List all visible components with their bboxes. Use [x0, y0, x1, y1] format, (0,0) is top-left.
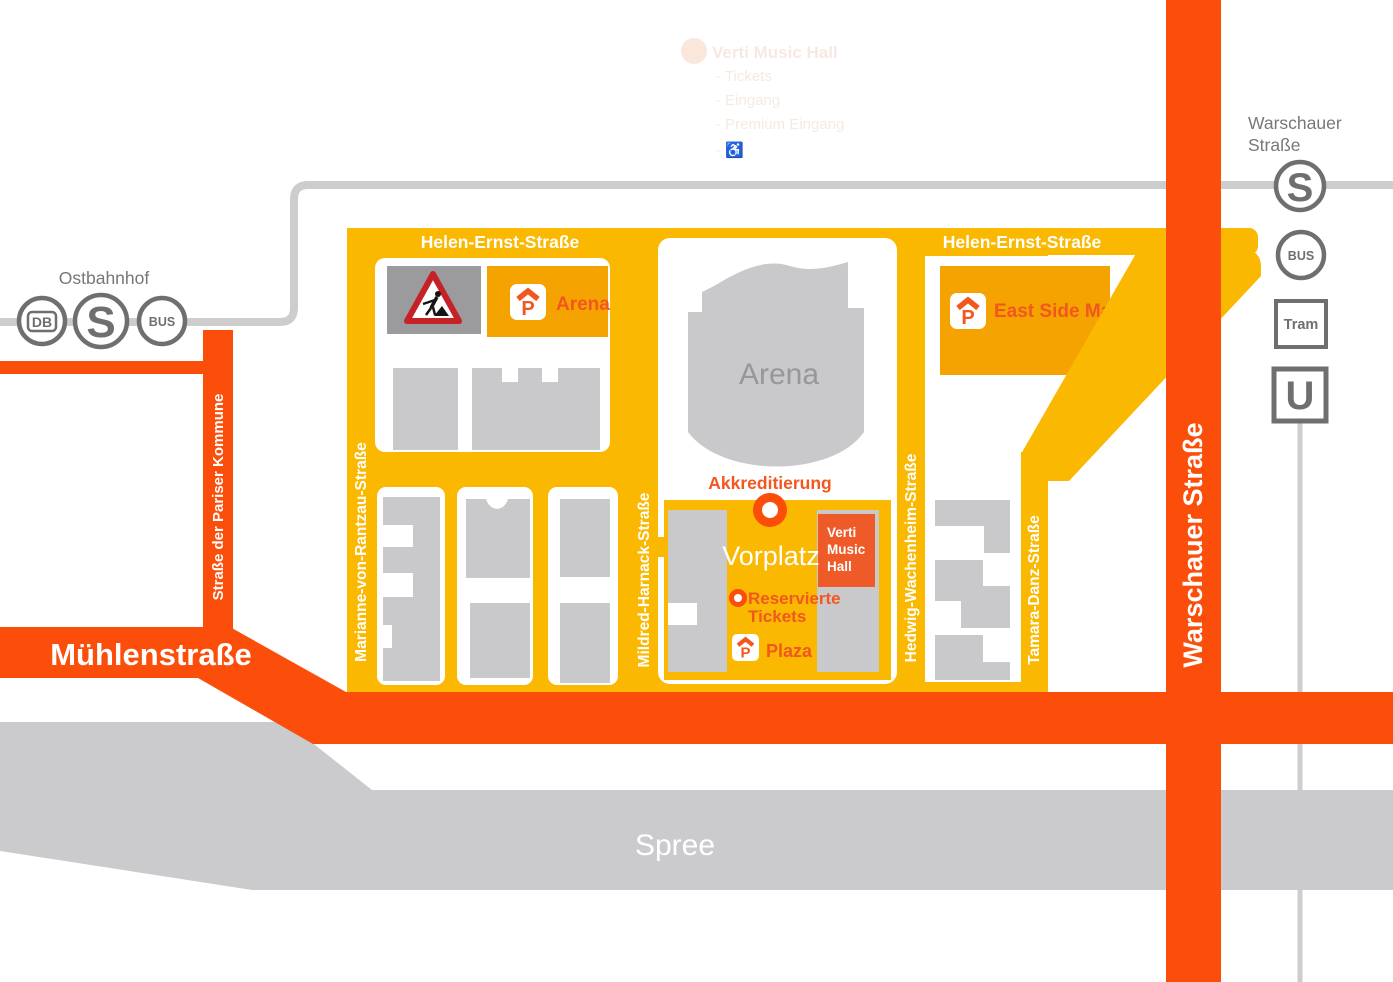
- bus-icon[interactable]: BUS: [139, 298, 185, 344]
- verti-label-line3: Hall: [827, 559, 852, 574]
- street-label-marianne: Marianne-von-Rantzau-Straße: [353, 442, 370, 662]
- sbahn-icon[interactable]: S: [1276, 162, 1324, 210]
- vorplatz-area: Verti Music Hall Vorplatz Plaza Reservie…: [648, 500, 891, 680]
- svg-text:BUS: BUS: [149, 315, 175, 329]
- svg-text:Tram: Tram: [1284, 317, 1319, 333]
- building: [560, 499, 610, 577]
- akkreditierung-label: Akkreditierung: [708, 473, 832, 493]
- verti-music-hall-area-map: P Verti Music Hall - Tickets - Eingang -…: [0, 0, 1393, 982]
- building-notch: [668, 603, 697, 625]
- reservierte-tickets-marker[interactable]: [732, 592, 745, 605]
- ghost-legend-title: Verti Music Hall: [712, 43, 838, 62]
- map-canvas: P Verti Music Hall - Tickets - Eingang -…: [0, 0, 1393, 982]
- svg-text:S: S: [1287, 166, 1314, 210]
- sbahn-icon[interactable]: S: [75, 295, 127, 347]
- building: [470, 603, 530, 678]
- db-icon[interactable]: DB: [19, 298, 65, 344]
- bus-icon[interactable]: BUS: [1278, 232, 1324, 278]
- building: [466, 499, 530, 578]
- svg-text:S: S: [86, 298, 115, 347]
- ghost-legend-item: - Tickets: [716, 68, 772, 85]
- building-notch: [383, 525, 413, 547]
- station-label-warschauer-line1: Warschauer: [1248, 113, 1342, 133]
- building: [560, 603, 610, 683]
- digger-head: [435, 291, 441, 297]
- building-notch: [383, 625, 392, 648]
- svg-text:U: U: [1286, 374, 1315, 418]
- verti-label-line2: Music: [827, 542, 866, 557]
- building: [472, 368, 600, 450]
- svg-text:DB: DB: [32, 314, 52, 330]
- street-label-warschauer-strasse: Warschauer Straße: [1178, 422, 1208, 667]
- parking-garage-icon[interactable]: [510, 284, 546, 320]
- ghost-legend-item: - Eingang: [716, 92, 780, 109]
- building: [668, 510, 727, 672]
- side-street-stub: [0, 361, 208, 374]
- street-label-helen-ernst-left: Helen-Ernst-Straße: [421, 232, 580, 252]
- parking-arena-label: Arena: [556, 294, 610, 315]
- tram-icon[interactable]: Tram: [1276, 301, 1326, 347]
- vorplatz-label: Vorplatz: [722, 541, 820, 571]
- akkreditierung-marker[interactable]: [758, 498, 783, 523]
- ghost-legend-item: - ♿: [716, 141, 744, 159]
- street-label-pariser-kommune: Straße der Pariser Kommune: [210, 394, 227, 601]
- reservierte-label-line2: Tickets: [748, 607, 806, 626]
- street-label-muehlenstrasse: Mühlenstraße: [50, 637, 252, 672]
- verti-label-line1: Verti: [827, 525, 856, 540]
- street-label-mildred: Mildred-Harnack-Straße: [636, 492, 653, 667]
- svg-text:BUS: BUS: [1288, 249, 1314, 263]
- building: [393, 368, 458, 450]
- building-notch: [383, 573, 413, 597]
- reservierte-label-line1: Reservierte: [748, 589, 841, 608]
- station-label-warschauer-line2: Straße: [1248, 135, 1301, 155]
- parking-plaza-label: Plaza: [766, 641, 813, 661]
- arena-label: Arena: [739, 358, 819, 391]
- parking-garage-icon[interactable]: [950, 293, 986, 329]
- ubahn-icon[interactable]: U: [1274, 369, 1326, 421]
- arena-contents: Arena: [688, 262, 864, 467]
- ghost-legend-marker-icon: [681, 38, 707, 64]
- street-label-hedwig: Hedwig-Wachenheim-Straße: [903, 453, 920, 662]
- river-label-spree: Spree: [635, 829, 715, 862]
- parking-garage-icon[interactable]: [732, 634, 759, 661]
- street-label-tamara: Tamara-Danz-Straße: [1026, 515, 1043, 665]
- station-label-ostbahnhof: Ostbahnhof: [59, 268, 150, 288]
- street-label-helen-ernst-right: Helen-Ernst-Straße: [943, 232, 1102, 252]
- ghost-legend-item: - Premium Eingang: [716, 116, 844, 133]
